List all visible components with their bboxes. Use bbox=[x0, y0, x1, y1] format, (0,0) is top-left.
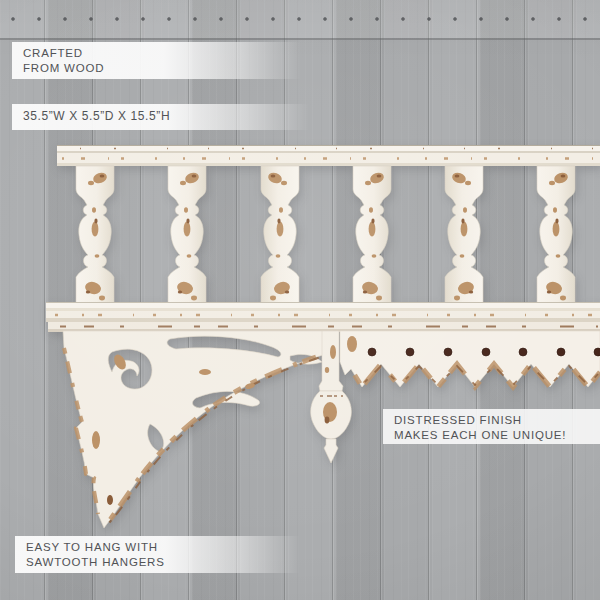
callout-text-line: MAKES EACH ONE UNIQUE! bbox=[394, 428, 589, 443]
callout-dimensions: 35.5”W X 5.5”D X 15.5”H bbox=[12, 104, 312, 130]
product-infographic: CRAFTED FROM WOOD 35.5”W X 5.5”D X 15.5”… bbox=[0, 0, 600, 600]
peg-dot bbox=[368, 348, 376, 356]
callout-text-line: CRAFTED bbox=[23, 46, 293, 61]
product-photo-distressed-wall-shelf bbox=[0, 0, 600, 600]
peg-dot bbox=[444, 348, 452, 356]
callout-text-line: SAWTOOTH HANGERS bbox=[26, 555, 292, 570]
callout-text-line: EASY TO HANG WITH bbox=[26, 540, 292, 555]
peg-dot bbox=[594, 348, 600, 356]
shelf-board bbox=[46, 302, 600, 332]
shelf-balusters bbox=[76, 166, 575, 305]
callout-text-line: DISTRESSED FINISH bbox=[394, 413, 589, 428]
sawtooth-apron bbox=[340, 331, 600, 387]
callout-easy-to-hang: EASY TO HANG WITH SAWTOOTH HANGERS bbox=[15, 536, 303, 573]
shelf-top-rail bbox=[57, 145, 600, 166]
peg-dot bbox=[519, 348, 527, 356]
peg-dot bbox=[557, 348, 565, 356]
callout-crafted-from-wood: CRAFTED FROM WOOD bbox=[12, 42, 304, 79]
callout-text-line: 35.5”W X 5.5”D X 15.5”H bbox=[23, 109, 301, 124]
callout-distressed-finish: DISTRESSED FINISH MAKES EACH ONE UNIQUE! bbox=[383, 409, 600, 444]
peg-dot bbox=[482, 348, 490, 356]
scroll-bracket bbox=[63, 331, 333, 528]
peg-dot bbox=[406, 348, 414, 356]
callout-text-line: FROM WOOD bbox=[23, 61, 293, 76]
